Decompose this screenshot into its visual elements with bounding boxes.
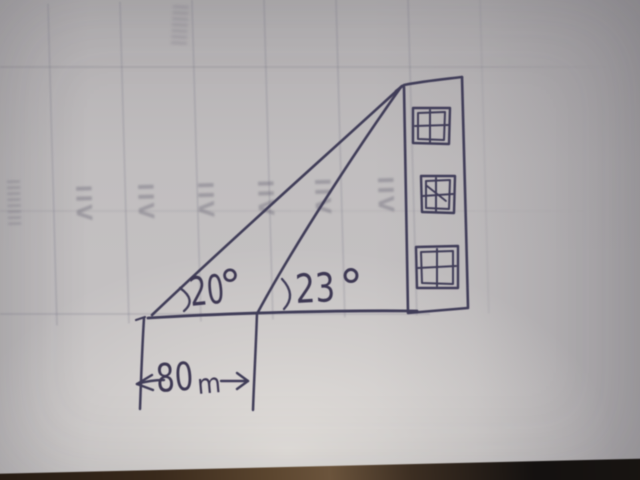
- angle-label-right: 23: [294, 265, 336, 313]
- dimension-line-right: [253, 313, 257, 410]
- degree-symbol-right: °: [339, 260, 363, 316]
- dimension-line-left: [140, 318, 144, 409]
- building-window-3: [416, 246, 458, 288]
- degree-symbol-left: °: [219, 261, 241, 312]
- photo-of-paper: VII VII VII VII VII VII: [0, 0, 640, 480]
- distance-unit-label: m: [196, 368, 222, 401]
- ground-line: [148, 311, 417, 318]
- hand-drawn-diagram: 20 ° 23 °: [0, 0, 640, 480]
- dimension-arrow-right: [221, 373, 248, 389]
- building-window-1: [413, 108, 450, 144]
- building-window-2: [421, 176, 455, 213]
- angle-arc-left: [180, 288, 190, 311]
- angle-arc-right: [282, 279, 290, 309]
- distance-label: 80: [155, 354, 195, 402]
- paper-sheet: VII VII VII VII VII VII: [0, 0, 640, 480]
